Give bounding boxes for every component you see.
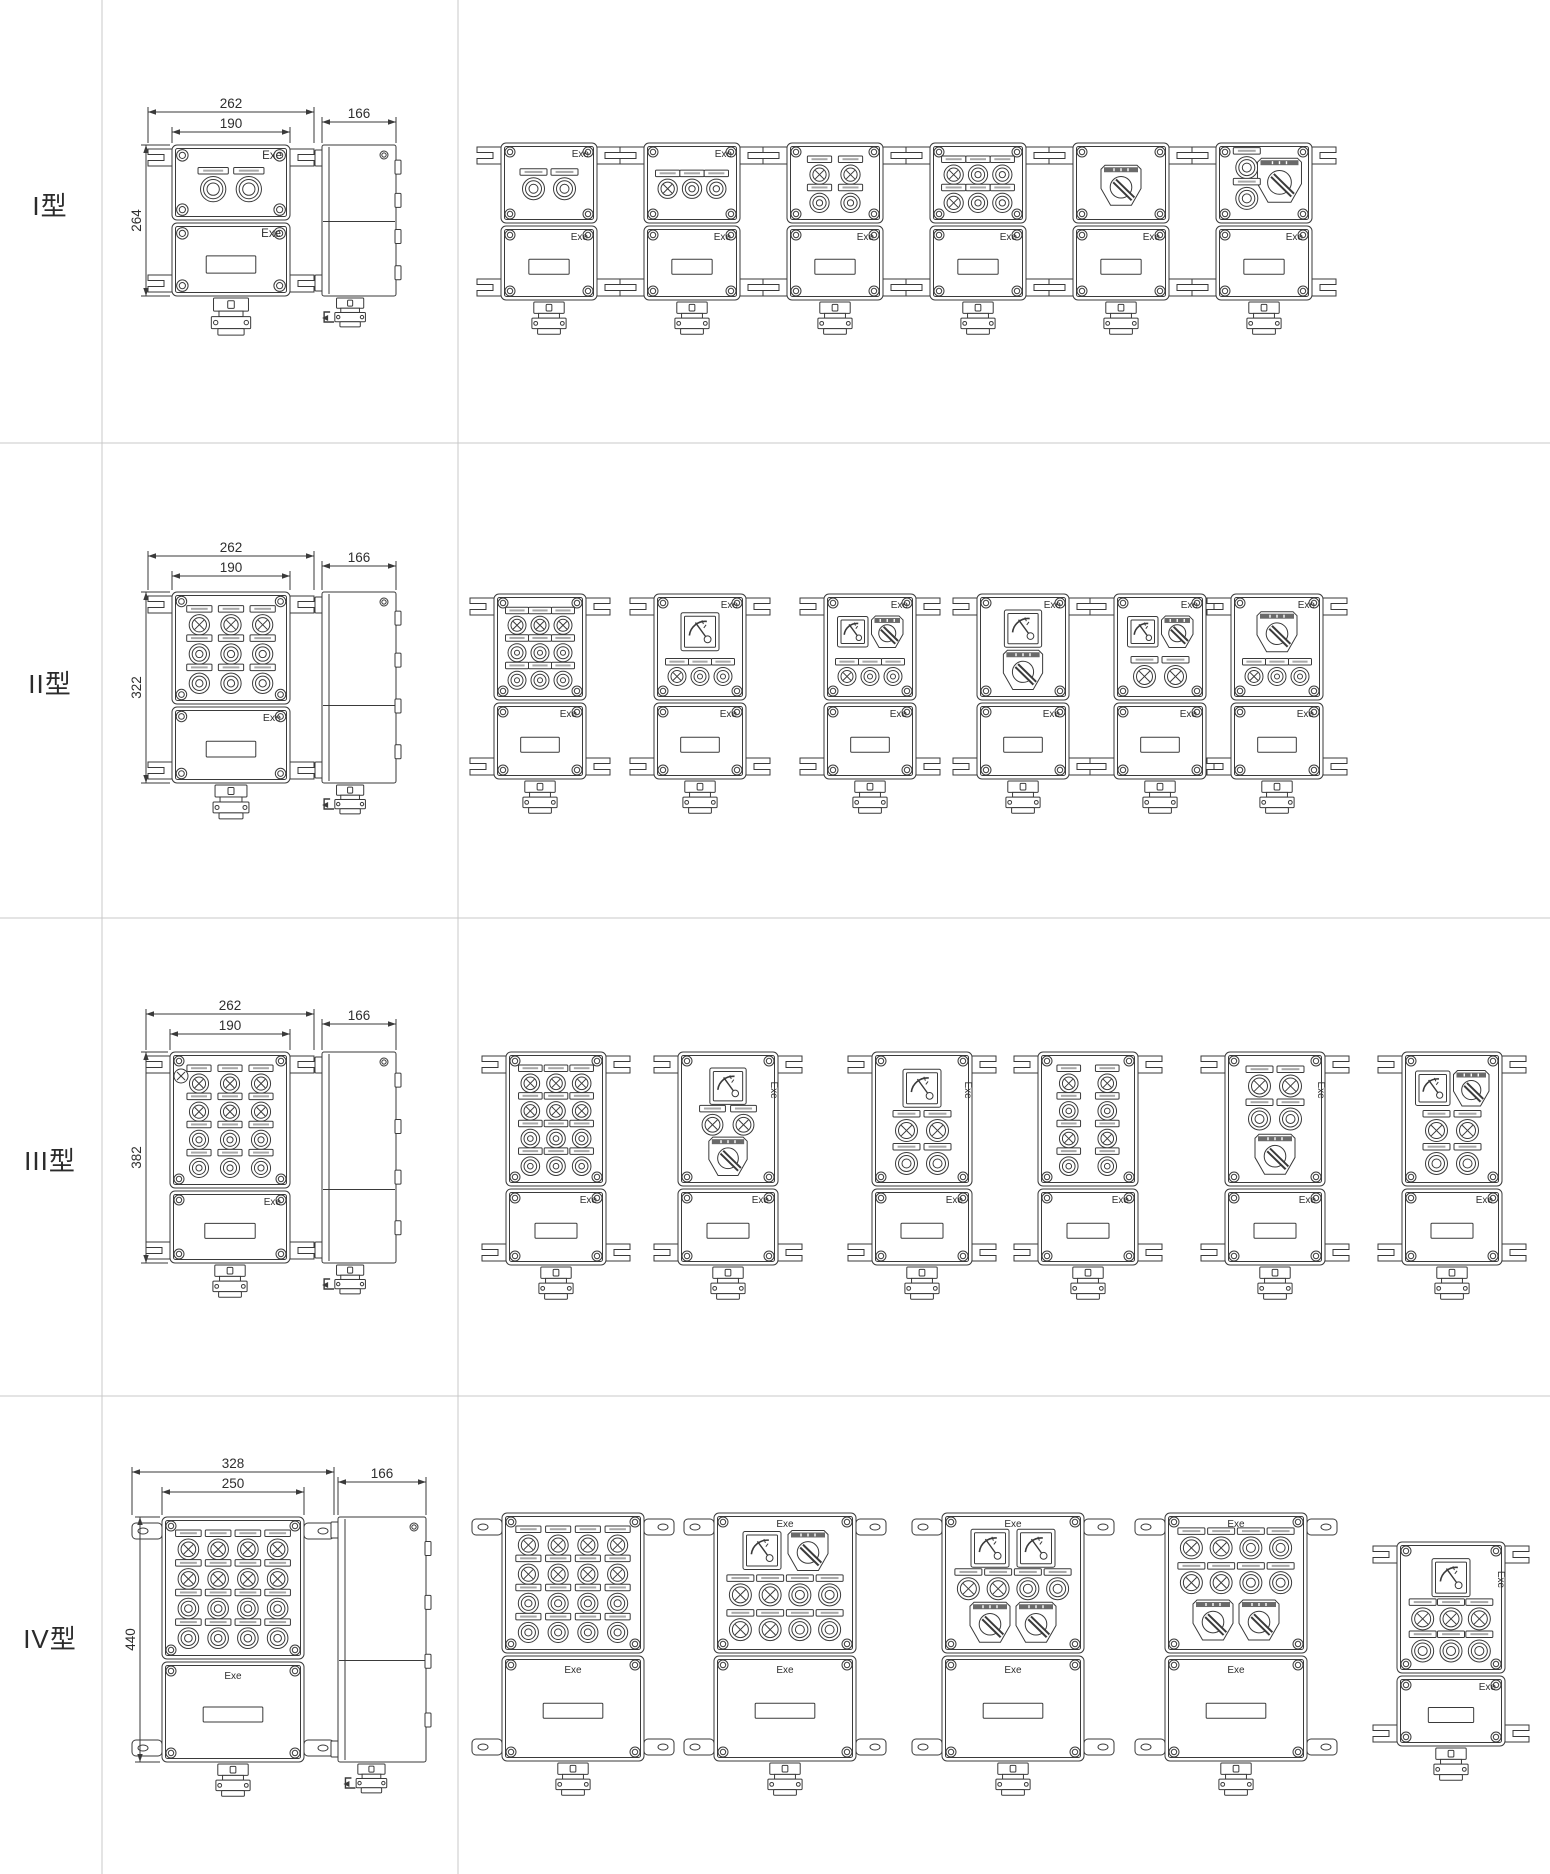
exe-marking: Exe	[580, 1195, 598, 1206]
indicator-lamp-icon	[656, 170, 680, 198]
rotary-switch-icon	[1193, 1600, 1233, 1640]
indicator-lamp-icon	[807, 156, 831, 184]
row-label-type-2: II型	[0, 664, 100, 701]
dimension: 440	[123, 1517, 160, 1762]
indicator-lamp-icon	[1095, 1065, 1119, 1093]
push-button-icon	[187, 1149, 211, 1177]
panel-meter-icon	[681, 613, 719, 651]
control-box-variant-I-5: Exe	[1049, 143, 1193, 334]
panel-meter-icon	[1128, 616, 1159, 647]
push-button-icon	[605, 1584, 630, 1613]
push-button-icon	[187, 1121, 211, 1149]
exe-marking: Exe	[1004, 1665, 1022, 1676]
push-button-icon	[570, 1148, 594, 1176]
exe-marking: Exe	[1227, 1665, 1245, 1676]
exe-marking: Exe	[1479, 1682, 1497, 1693]
panel-meter-icon	[838, 616, 869, 647]
rotary-switch-icon	[1239, 1600, 1279, 1640]
push-button-icon	[546, 1613, 571, 1642]
dimension-label: 262	[220, 540, 243, 555]
cable-gland-icon	[335, 785, 366, 814]
dimension: 190	[172, 560, 290, 590]
cable-gland-icon	[335, 1265, 366, 1294]
push-button-icon	[575, 1613, 600, 1642]
indicator-lamp-icon	[519, 1093, 543, 1121]
push-button-icon	[519, 1120, 543, 1148]
indicator-lamp-icon	[1454, 1111, 1481, 1142]
row-label-type-1: I型	[0, 186, 100, 223]
exe-marking: Exe	[776, 1665, 794, 1676]
indicator-lamp-icon	[205, 1560, 231, 1590]
cable-gland-icon	[1258, 1267, 1292, 1299]
dimension: 166	[322, 1008, 396, 1050]
exe-marking: Exe	[1181, 600, 1199, 611]
dimensioned-front-view: Exe	[148, 592, 314, 819]
exe-marking: Exe	[752, 1195, 770, 1206]
rotary-switch-icon	[1162, 616, 1194, 648]
push-button-icon	[859, 658, 882, 685]
exe-marking: Exe	[571, 232, 589, 243]
push-button-icon	[704, 170, 728, 198]
dimension: 166	[322, 106, 396, 143]
push-button-icon	[689, 658, 712, 685]
control-box-variant-III-6: Exe	[1378, 1052, 1526, 1299]
push-button-icon	[506, 635, 529, 662]
push-button-icon	[250, 635, 275, 664]
exe-marking: Exe	[776, 1519, 794, 1530]
push-button-icon	[552, 635, 575, 662]
push-button-icon	[176, 1619, 202, 1649]
indicator-lamp-icon	[838, 156, 862, 184]
dimension: 322	[129, 592, 170, 783]
exe-marking: Exe	[1298, 600, 1316, 611]
indicator-lamp-icon	[265, 1560, 291, 1590]
panel-meter-icon	[971, 1529, 1009, 1567]
dimension-label: 264	[129, 209, 144, 232]
cable-gland-icon	[539, 1267, 573, 1299]
indicator-lamp-icon	[1131, 656, 1158, 687]
control-box-variant-III-1: Exe	[482, 1052, 630, 1299]
dimension: 166	[338, 1466, 426, 1515]
cable-gland-icon	[711, 1267, 745, 1299]
push-button-icon	[1233, 148, 1260, 179]
cable-gland-icon	[818, 302, 852, 334]
dimension-label: 166	[348, 106, 371, 121]
dimension-label: 440	[123, 1628, 138, 1651]
exe-marking: Exe	[962, 1081, 973, 1099]
side-view	[315, 592, 401, 814]
push-button-icon	[235, 1589, 261, 1619]
push-button-icon	[1057, 1148, 1081, 1176]
dimension-label: 190	[220, 560, 243, 575]
dimensioned-front-view: ExeExe	[148, 145, 314, 335]
catalog-page: ExeExe262190264166ExeExeExeExeExeExeExeE…	[0, 0, 1550, 1874]
control-box-variant-III-3: ExeExe	[848, 1052, 996, 1299]
push-button-icon	[1246, 1099, 1273, 1130]
indicator-lamp-icon	[942, 156, 966, 184]
type-row-I: ExeExe262190264166ExeExeExeExeExeExeExeE…	[129, 96, 1336, 335]
rotary-switch-icon	[1454, 1071, 1490, 1107]
cable-gland-icon	[1435, 1267, 1469, 1299]
push-button-icon	[516, 1584, 541, 1613]
push-button-icon	[786, 1610, 813, 1641]
control-box-variant-III-2: ExeExe	[654, 1052, 802, 1299]
indicator-lamp-icon	[235, 1560, 261, 1590]
dimension-label: 166	[348, 1008, 371, 1023]
control-box-variant-I-3: Exe	[763, 143, 907, 334]
type-row-III: Exe262190382166ExeExeExeExeExeExeExeExeE…	[129, 998, 1526, 1299]
indicator-lamp-icon	[1466, 1599, 1493, 1630]
dimension-label: 190	[220, 116, 243, 131]
indicator-lamp-icon	[235, 1530, 261, 1560]
cable-gland-icon	[768, 1763, 802, 1795]
control-box-variant-I-6: Exe	[1192, 143, 1336, 334]
exe-marking: Exe	[1043, 709, 1061, 720]
push-button-icon	[218, 1121, 242, 1149]
indicator-lamp-icon	[205, 1530, 231, 1560]
push-button-icon	[218, 1149, 242, 1177]
push-button-icon	[1289, 658, 1312, 685]
indicator-lamp-icon	[249, 1093, 273, 1121]
push-button-icon	[1044, 1569, 1071, 1600]
push-button-icon	[570, 1120, 594, 1148]
indicator-lamp-icon	[249, 1065, 273, 1093]
type-row-IV: Exe328250440166ExeExeExeExeExeExeExeExeE…	[123, 1456, 1529, 1796]
dimension-label: 322	[129, 676, 144, 699]
indicator-lamp-icon	[1057, 1065, 1081, 1093]
indicator-lamp-icon	[1178, 1528, 1205, 1559]
exe-marking: Exe	[1044, 600, 1062, 611]
rotary-switch-icon	[1003, 650, 1042, 689]
exe-marking: Exe	[1004, 1519, 1022, 1530]
indicator-lamp-icon	[985, 1569, 1012, 1600]
control-box-variant-IV-3: ExeExe	[912, 1513, 1114, 1795]
exe-marking: Exe	[720, 709, 738, 720]
push-button-icon	[187, 635, 212, 664]
push-button-icon	[838, 184, 862, 212]
push-button-icon	[1423, 1144, 1450, 1175]
indicator-lamp-icon	[1208, 1563, 1235, 1594]
indicator-lamp-icon	[1095, 1120, 1119, 1148]
rotary-switch-icon	[872, 616, 904, 648]
push-button-icon	[250, 664, 275, 693]
indicator-lamp-icon	[924, 1111, 951, 1142]
indicator-lamp-icon	[250, 606, 275, 635]
cable-gland-icon	[853, 781, 887, 813]
rotary-switch-icon	[1101, 165, 1141, 205]
indicator-lamp-icon	[570, 1093, 594, 1121]
rotary-switch-icon	[1016, 1602, 1056, 1642]
indicator-lamp-icon	[1162, 656, 1189, 687]
indicator-lamp-icon	[187, 606, 212, 635]
indicator-lamp-icon	[700, 1105, 726, 1135]
control-box-variant-II-1: Exe	[470, 594, 610, 813]
rotary-switch-icon	[1257, 158, 1301, 202]
indicator-lamp-icon	[1243, 658, 1266, 685]
indicator-lamp-icon	[605, 1526, 630, 1555]
cable-gland-icon	[532, 302, 566, 334]
indicator-lamp-icon	[529, 607, 552, 634]
cable-gland-icon	[1260, 781, 1294, 813]
exe-marking: Exe	[572, 149, 590, 160]
push-button-icon	[1277, 1099, 1304, 1130]
push-button-icon	[529, 662, 552, 689]
exe-marking: Exe	[890, 709, 908, 720]
push-button-icon	[1237, 1563, 1264, 1594]
push-button-icon	[249, 1149, 273, 1177]
side-view	[315, 145, 401, 327]
exe-marking: Exe	[560, 709, 578, 720]
dimension: 190	[172, 116, 290, 143]
indicator-lamp-icon	[265, 1530, 291, 1560]
push-button-icon	[807, 184, 831, 212]
control-box-variant-II-4: ExeExe	[953, 594, 1093, 813]
dimension: 190	[170, 1018, 290, 1050]
indicator-lamp-icon	[218, 1093, 242, 1121]
push-button-icon	[1237, 1528, 1264, 1559]
panel-meter-icon	[903, 1069, 941, 1107]
dimension-label: 262	[219, 998, 242, 1013]
exe-marking: Exe	[1476, 1195, 1494, 1206]
dimension: 166	[322, 550, 396, 590]
exe-marking: Exe	[261, 228, 281, 240]
push-button-icon	[198, 167, 228, 201]
push-button-icon	[575, 1584, 600, 1613]
push-button-icon	[712, 658, 735, 685]
control-box-variant-II-6: ExeExe	[1207, 594, 1347, 813]
control-box-variant-IV-4: ExeExe	[1135, 1513, 1337, 1795]
indicator-lamp-icon	[546, 1526, 571, 1555]
push-button-icon	[893, 1144, 920, 1175]
push-button-icon	[966, 156, 990, 184]
dimension-label: 382	[129, 1146, 144, 1169]
exe-marking: Exe	[1000, 232, 1018, 243]
control-box-variant-I-1: ExeExe	[477, 143, 621, 334]
panel-meter-icon	[1004, 610, 1041, 647]
dimension: 250	[162, 1476, 304, 1515]
rotary-switch-icon	[1255, 1134, 1295, 1174]
exe-marking: Exe	[721, 600, 739, 611]
exe-marking: Exe	[1297, 709, 1315, 720]
indicator-lamp-icon	[731, 1105, 757, 1135]
panel-meter-icon	[1432, 1559, 1470, 1597]
indicator-lamp-icon	[1423, 1111, 1450, 1142]
exe-marking: Exe	[1299, 1195, 1317, 1206]
push-button-icon	[218, 664, 243, 693]
indicator-lamp-icon	[506, 607, 529, 634]
rotary-switch-icon	[709, 1137, 747, 1175]
side-view	[315, 1052, 401, 1294]
dimension-label: 166	[371, 1466, 394, 1481]
push-button-icon	[544, 1148, 568, 1176]
indicator-lamp-icon	[575, 1555, 600, 1584]
exe-marking: Exe	[1495, 1571, 1506, 1589]
cable-gland-icon	[216, 1764, 250, 1796]
indicator-lamp-icon	[570, 1065, 594, 1093]
indicator-lamp-icon	[605, 1555, 630, 1584]
indicator-lamp-icon	[544, 1065, 568, 1093]
push-button-icon	[990, 184, 1014, 212]
push-button-icon	[816, 1610, 843, 1641]
cable-gland-icon	[213, 1265, 247, 1297]
indicator-lamp-icon	[666, 658, 689, 685]
row-label-type-3: III型	[0, 1141, 100, 1178]
push-button-icon	[234, 167, 264, 201]
indicator-lamp-icon	[575, 1526, 600, 1555]
control-box-variant-III-4: Exe	[1014, 1052, 1162, 1299]
push-button-icon	[680, 170, 704, 198]
push-button-icon	[205, 1589, 231, 1619]
indicator-lamp-icon	[552, 607, 575, 634]
indicator-lamp-icon	[544, 1093, 568, 1121]
rotary-switch-icon	[1257, 612, 1297, 652]
indicator-lamp-icon	[516, 1526, 541, 1555]
cable-gland-icon	[356, 1764, 387, 1793]
control-box-variant-II-2: ExeExe	[630, 594, 770, 813]
indicator-lamp-icon	[1409, 1599, 1436, 1630]
panel-meter-icon	[1416, 1071, 1451, 1106]
indicator-lamp-icon	[187, 1093, 211, 1121]
indicator-lamp-icon	[519, 1065, 543, 1093]
dimension-label: 190	[219, 1018, 242, 1033]
push-button-icon	[1095, 1148, 1119, 1176]
cable-gland-icon	[905, 1267, 939, 1299]
push-button-icon	[882, 658, 905, 685]
indicator-lamp-icon	[757, 1610, 784, 1641]
dimension-label: 328	[222, 1456, 245, 1471]
push-button-icon	[1409, 1631, 1436, 1662]
push-button-icon	[265, 1589, 291, 1619]
push-button-icon	[966, 184, 990, 212]
push-button-icon	[552, 662, 575, 689]
indicator-lamp-icon	[187, 1065, 211, 1093]
push-button-icon	[265, 1619, 291, 1649]
push-button-icon	[1095, 1093, 1119, 1121]
push-button-icon	[249, 1121, 273, 1149]
indicator-lamp-icon	[176, 1530, 202, 1560]
push-button-icon	[1454, 1144, 1481, 1175]
push-button-icon	[544, 1120, 568, 1148]
push-button-icon	[205, 1619, 231, 1649]
push-button-icon	[990, 156, 1014, 184]
exe-marking: Exe	[262, 150, 282, 162]
exe-marking: Exe	[946, 1195, 964, 1206]
cable-gland-icon	[335, 298, 366, 327]
exe-marking: Exe	[857, 232, 875, 243]
push-button-icon	[546, 1584, 571, 1613]
catalog-diagram: ExeExe262190264166ExeExeExeExeExeExeExeE…	[0, 0, 1550, 1874]
push-button-icon	[176, 1589, 202, 1619]
indicator-lamp-icon	[836, 658, 859, 685]
panel-meter-icon	[710, 1068, 746, 1104]
push-button-icon	[235, 1619, 261, 1649]
indicator-lamp-icon	[893, 1111, 920, 1142]
push-button-icon	[1057, 1093, 1081, 1121]
cable-gland-icon	[556, 1763, 590, 1795]
indicator-lamp-icon	[218, 606, 243, 635]
indicator-lamp-icon	[1057, 1120, 1081, 1148]
indicator-lamp-icon	[955, 1569, 982, 1600]
cable-gland-icon	[1104, 302, 1138, 334]
cable-gland-icon	[1071, 1267, 1105, 1299]
exe-marking: Exe	[1227, 1519, 1245, 1530]
push-button-icon	[924, 1144, 951, 1175]
push-button-icon	[786, 1575, 813, 1606]
cable-gland-icon	[211, 298, 250, 335]
push-button-icon	[187, 664, 212, 693]
exe-marking: Exe	[1315, 1081, 1326, 1099]
indicator-lamp-icon	[546, 1555, 571, 1584]
push-button-icon	[218, 635, 243, 664]
cable-gland-icon	[961, 302, 995, 334]
push-button-icon	[506, 662, 529, 689]
indicator-lamp-icon	[1277, 1066, 1304, 1097]
panel-meter-icon	[743, 1531, 781, 1569]
exe-marking: Exe	[1112, 1195, 1130, 1206]
push-button-icon	[1267, 1528, 1294, 1559]
dimension-label: 250	[222, 1476, 245, 1491]
push-button-icon	[519, 1148, 543, 1176]
control-box-variant-IV-2: ExeExe	[684, 1513, 886, 1795]
row-label-type-4: IV型	[0, 1619, 100, 1656]
exe-marking: Exe	[1180, 709, 1198, 720]
control-box-variant-II-5: ExeExe	[1090, 594, 1230, 813]
type-row-II: Exe262190322166ExeExeExeExeExeExeExeExeE…	[129, 540, 1347, 819]
control-box-variant-I-4: Exe	[906, 143, 1050, 334]
rotary-switch-icon	[788, 1530, 828, 1570]
indicator-lamp-icon	[1246, 1066, 1273, 1097]
side-view	[331, 1517, 431, 1793]
panel-meter-icon	[1017, 1529, 1055, 1567]
dimension-label: 166	[348, 550, 371, 565]
control-box-variant-IV-1: Exe	[472, 1513, 674, 1795]
push-button-icon	[1014, 1569, 1041, 1600]
control-box-variant-II-3: ExeExe	[800, 594, 940, 813]
cable-gland-icon	[683, 781, 717, 813]
push-button-icon	[551, 169, 578, 200]
dimensioned-front-view: Exe	[132, 1517, 334, 1796]
push-button-icon	[520, 169, 547, 200]
indicator-lamp-icon	[176, 1560, 202, 1590]
push-button-icon	[1266, 658, 1289, 685]
indicator-lamp-icon	[1438, 1599, 1465, 1630]
exe-marking: Exe	[264, 1197, 282, 1208]
exe-marking: Exe	[263, 712, 281, 724]
exe-marking: Exe	[715, 149, 733, 160]
push-button-icon	[1267, 1563, 1294, 1594]
indicator-lamp-icon	[516, 1555, 541, 1584]
exe-marking: Exe	[1286, 232, 1304, 243]
push-button-icon	[816, 1575, 843, 1606]
dimension: 264	[129, 145, 170, 296]
push-button-icon	[605, 1613, 630, 1642]
push-button-icon	[1233, 178, 1260, 209]
exe-marking: Exe	[714, 232, 732, 243]
push-button-icon	[516, 1613, 541, 1642]
cable-gland-icon	[1219, 1763, 1253, 1795]
indicator-lamp-icon	[1208, 1528, 1235, 1559]
cable-gland-icon	[1006, 781, 1040, 813]
indicator-lamp-icon	[727, 1575, 754, 1606]
indicator-lamp-icon	[942, 184, 966, 212]
cable-gland-icon	[1143, 781, 1177, 813]
indicator-lamp-icon	[1178, 1563, 1205, 1594]
control-box-variant-IV-5: ExeExe	[1373, 1542, 1529, 1780]
push-button-icon	[1466, 1631, 1493, 1662]
push-button-icon	[1438, 1631, 1465, 1662]
cable-gland-icon	[1247, 302, 1281, 334]
push-button-icon	[529, 635, 552, 662]
